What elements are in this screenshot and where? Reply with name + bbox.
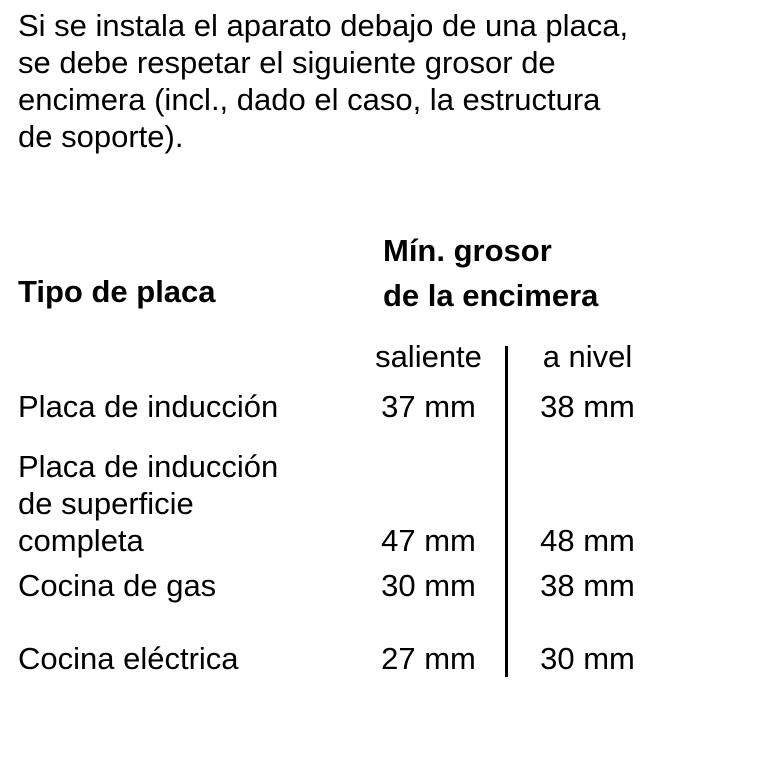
subheader-a-nivel: a nivel [515,338,660,375]
saliente-value: 27 mm [352,640,505,677]
table-row: Placa de inducción de superficie complet… [18,448,678,559]
intro-line-2: se debe respetar el siguiente grosor de [18,44,628,81]
intro-line-3: encimera (incl., dado el caso, la estruc… [18,81,628,118]
table-subheader-row: saliente a nivel [18,338,678,375]
a-nivel-value: 48 mm [515,522,660,559]
subheader-saliente: saliente [352,338,505,375]
manual-page: Si se instala el aparato debajo de una p… [0,0,760,760]
table-header-min-thickness: Mín. grosor de la encimera [383,228,598,318]
table-row: Cocina de gas 30 mm 38 mm [18,567,678,604]
saliente-value: 47 mm [352,522,505,559]
saliente-value: 30 mm [352,567,505,604]
saliente-value: 37 mm [352,388,505,425]
row-label: Cocina eléctrica [18,640,352,677]
table-header-min-thickness-line-1: Mín. grosor [383,228,598,273]
column-divider-line [505,346,508,677]
a-nivel-value: 38 mm [515,388,660,425]
row-label-line: Placa de inducción [18,388,352,425]
row-label-line: Cocina de gas [18,567,352,604]
row-label-line: de superficie [18,485,352,522]
table-row: Placa de inducción 37 mm 38 mm [18,388,678,425]
table-row: Cocina eléctrica 27 mm 30 mm [18,640,678,677]
row-label-line: Cocina eléctrica [18,640,352,677]
a-nivel-value: 38 mm [515,567,660,604]
intro-line-1: Si se instala el aparato debajo de una p… [18,7,628,44]
intro-line-4: de soporte). [18,118,628,155]
row-label-line: completa [18,522,352,559]
intro-paragraph: Si se instala el aparato debajo de una p… [18,7,628,155]
table-header-min-thickness-line-2: de la encimera [383,273,598,318]
table-header-hob-type: Tipo de placa [18,273,216,310]
row-label: Cocina de gas [18,567,352,604]
row-label: Placa de inducción de superficie complet… [18,448,352,559]
row-label: Placa de inducción [18,388,352,425]
row-label-line: Placa de inducción [18,448,352,485]
a-nivel-value: 30 mm [515,640,660,677]
